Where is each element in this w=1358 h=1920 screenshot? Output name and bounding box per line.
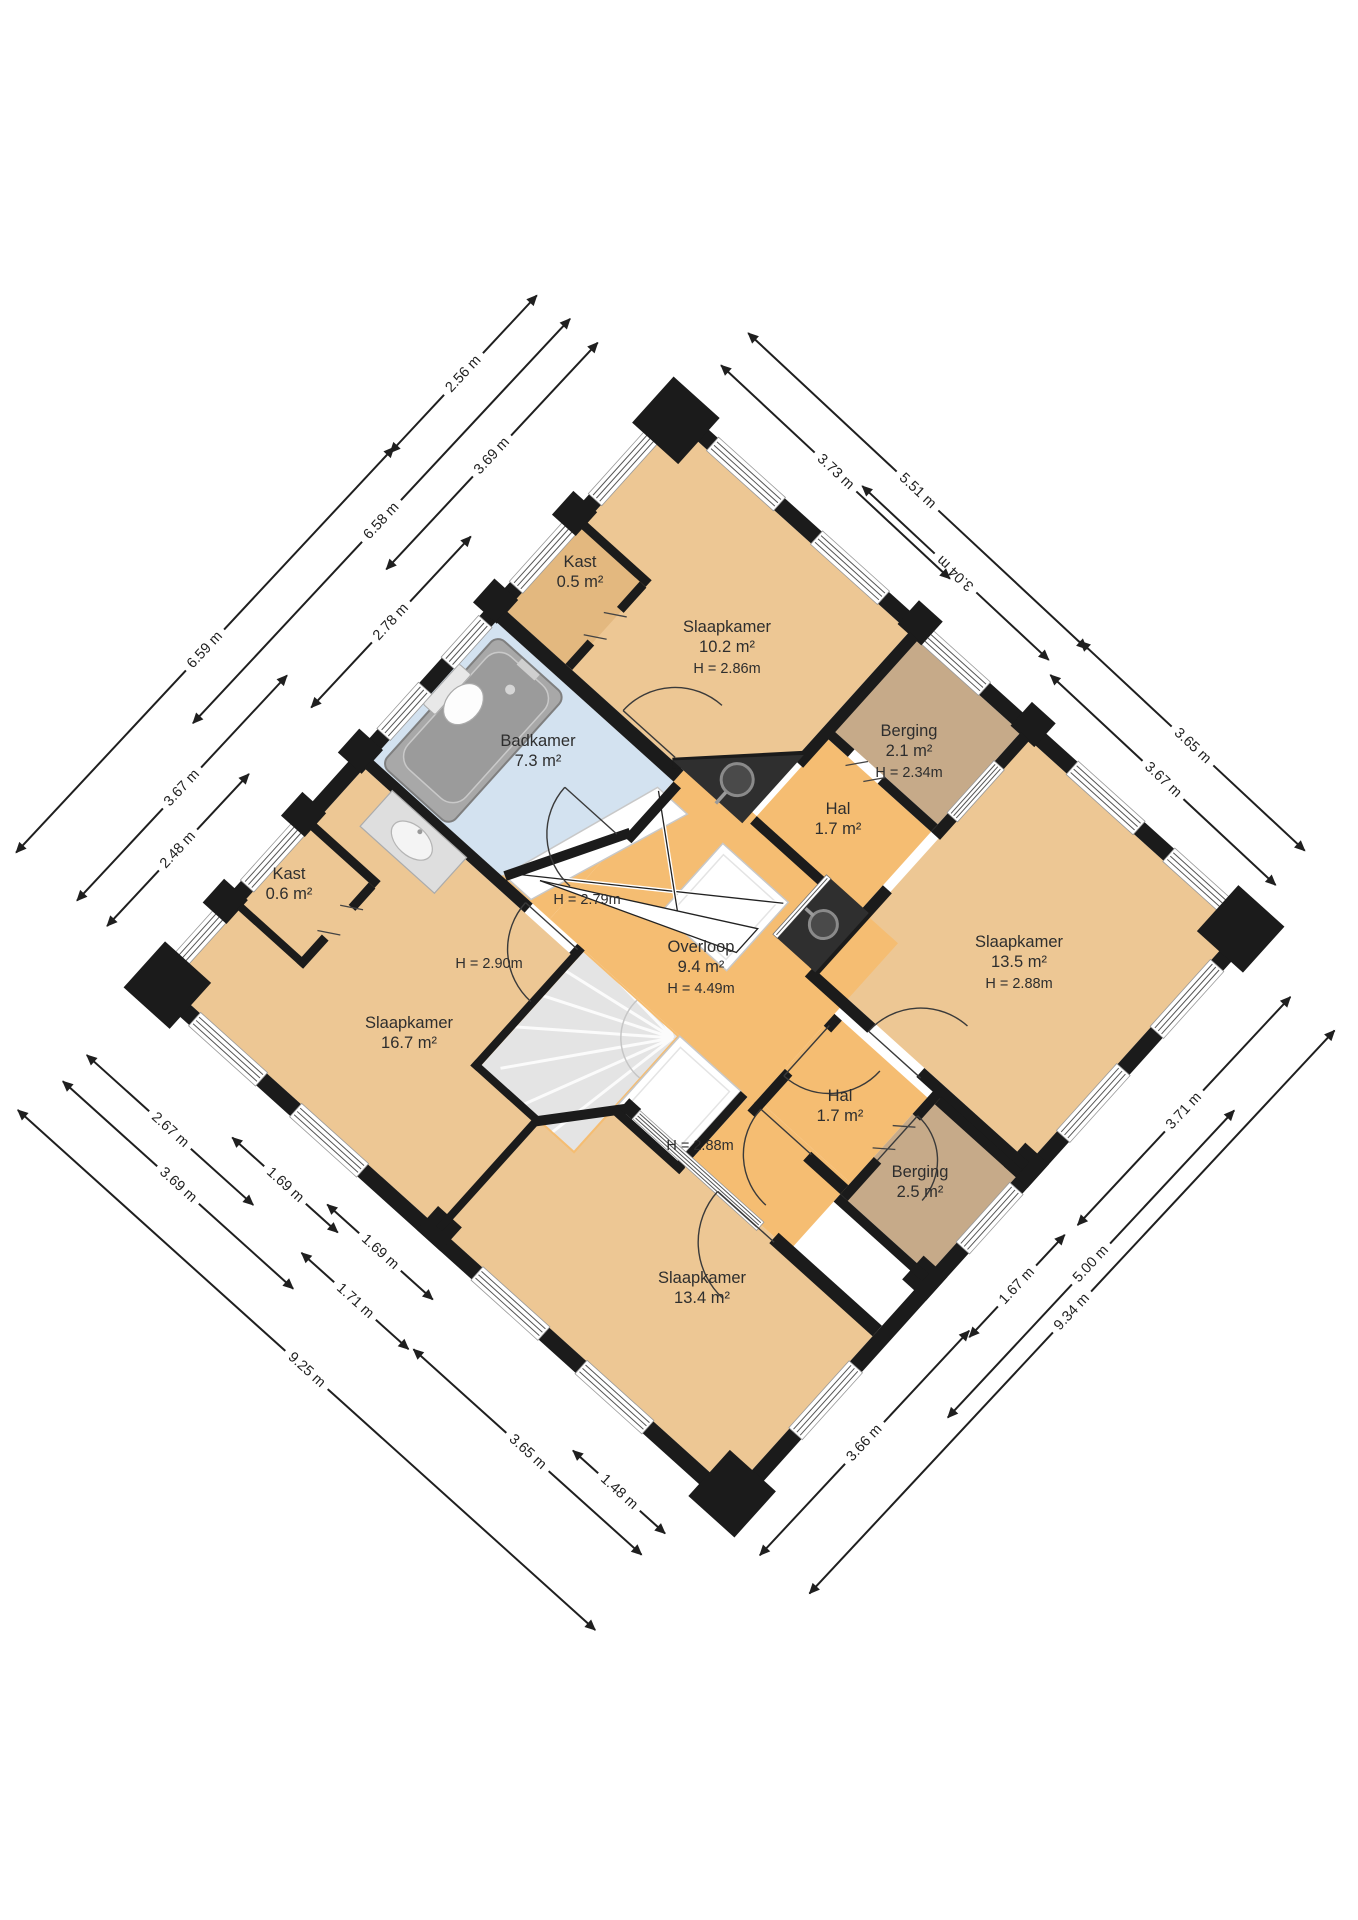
floor-plan <box>0 0 1358 1920</box>
height-label: H = 2.79m <box>553 892 620 908</box>
height-label: H = 2.90m <box>455 956 522 972</box>
floorplan-page: Kast0.5 m²Slaapkamer10.2 m²H = 2.86mBadk… <box>0 0 1358 1920</box>
height-label: H = 2.88m <box>666 1138 733 1154</box>
